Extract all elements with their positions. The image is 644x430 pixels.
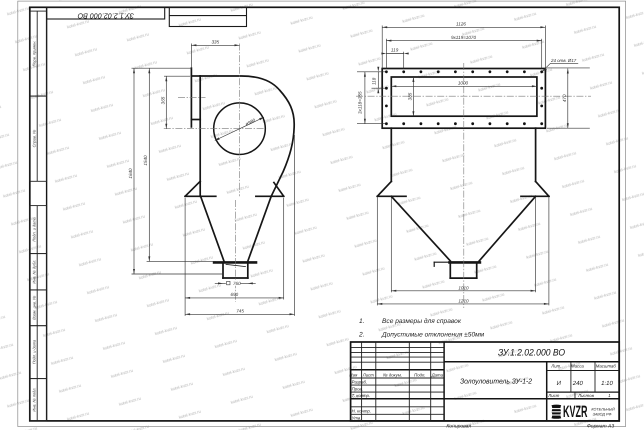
svg-text:Допустимые отклонения ±50мм: Допустимые отклонения ±50мм — [381, 332, 485, 339]
svg-text:2.: 2. — [358, 332, 365, 339]
svg-text:1210: 1210 — [458, 299, 469, 304]
svg-text:Изм: Изм — [349, 373, 357, 378]
svg-text:9x119=1070: 9x119=1070 — [451, 35, 477, 40]
svg-text:ЗАВОД РФ: ЗАВОД РФ — [593, 413, 612, 417]
svg-text:Инв. № подл.: Инв. № подл. — [31, 387, 36, 411]
svg-text:Все размеры для справок: Все размеры для справок — [382, 318, 462, 325]
svg-text:KVZR: KVZR — [563, 403, 588, 421]
svg-text:119: 119 — [391, 48, 399, 53]
svg-text:118: 118 — [372, 77, 377, 85]
svg-text:Копировал: Копировал — [446, 423, 471, 429]
svg-text:1540: 1540 — [143, 155, 148, 166]
svg-text:Золоуловитель ЗУ-1-2: Золоуловитель ЗУ-1-2 — [460, 377, 532, 386]
svg-text:335: 335 — [211, 40, 219, 45]
svg-text:1.: 1. — [359, 318, 365, 325]
svg-text:470: 470 — [562, 94, 567, 102]
svg-text:ЗУ.1.2.02.000 ВО: ЗУ.1.2.02.000 ВО — [498, 346, 566, 357]
svg-text:Листов: Листов — [577, 393, 594, 398]
svg-text:Справ. №: Справ. № — [31, 129, 36, 147]
svg-text:Дата: Дата — [431, 373, 444, 378]
svg-text:№ докум.: № докум. — [383, 373, 402, 378]
svg-text:24 отв. Ø17: 24 отв. Ø17 — [550, 58, 577, 63]
svg-text:ЗУ.1.2.02.000 ВО: ЗУ.1.2.02.000 ВО — [77, 11, 134, 20]
svg-text:Инв. № дубл.: Инв. № дубл. — [31, 260, 36, 284]
svg-text:1126: 1126 — [456, 21, 466, 26]
svg-text:745: 745 — [236, 309, 244, 314]
svg-text:Подп. и дата: Подп. и дата — [31, 339, 36, 364]
svg-text:Взам. инв. №: Взам. инв. № — [31, 295, 36, 320]
svg-text:1000: 1000 — [458, 81, 469, 86]
svg-text:385: 385 — [408, 92, 413, 100]
svg-text:1:10: 1:10 — [601, 380, 613, 387]
svg-text:3x118=355: 3x118=355 — [358, 91, 363, 114]
svg-text:Н. контр.: Н. контр. — [352, 409, 371, 414]
svg-text:Масштаб: Масштаб — [596, 364, 617, 369]
svg-text:1010: 1010 — [458, 285, 469, 290]
svg-text:Т. контр.: Т. контр. — [352, 393, 371, 398]
svg-text:760: 760 — [233, 281, 241, 286]
svg-text:Масса: Масса — [571, 364, 584, 369]
svg-text:Утв.: Утв. — [352, 416, 362, 421]
svg-text:Формат А3: Формат А3 — [587, 423, 615, 429]
svg-text:КОТЕЛЬНЫЙ: КОТЕЛЬНЫЙ — [591, 407, 615, 412]
svg-text:Лит.: Лит. — [550, 364, 561, 369]
svg-text:Лист: Лист — [547, 393, 559, 398]
svg-text:Разраб.: Разраб. — [352, 379, 368, 384]
svg-text:Подп. и дата: Подп. и дата — [31, 216, 36, 241]
svg-text:1640: 1640 — [128, 168, 133, 179]
svg-text:Перв. примен.: Перв. примен. — [31, 41, 36, 67]
svg-text:И: И — [557, 380, 562, 387]
svg-text:Лист: Лист — [362, 373, 374, 378]
svg-text:Пров.: Пров. — [352, 386, 363, 391]
svg-text:365: 365 — [161, 96, 166, 104]
svg-text:Подп.: Подп. — [414, 373, 425, 378]
svg-text:690: 690 — [230, 292, 238, 297]
svg-text:240: 240 — [572, 380, 584, 387]
